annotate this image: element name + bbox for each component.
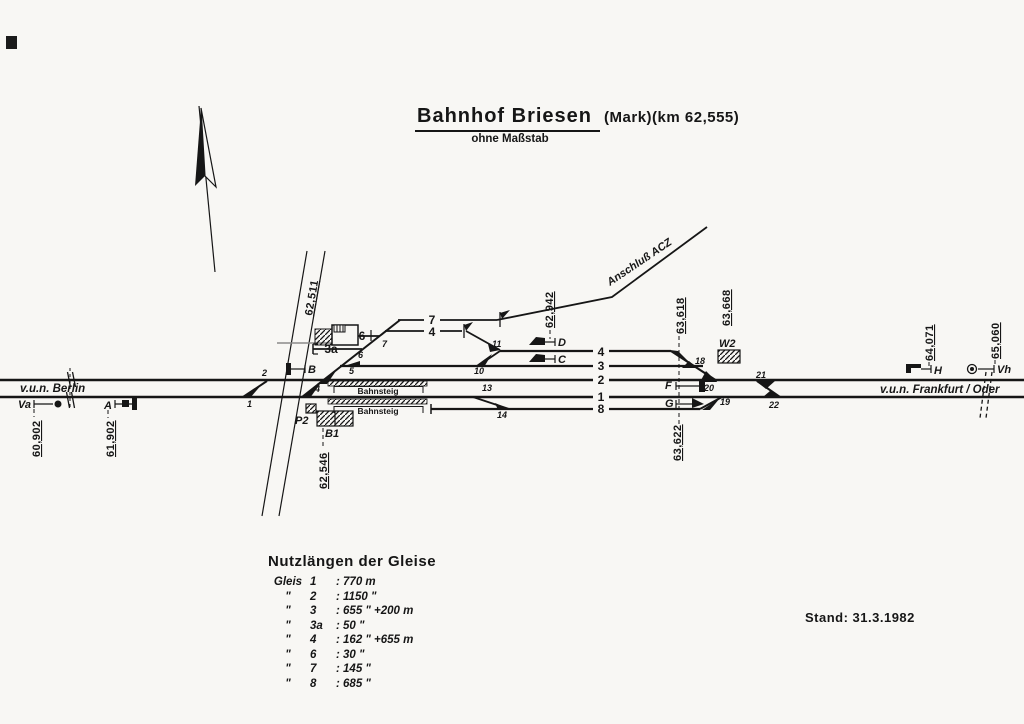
direction-right: v.u.n. Frankfurt / Oder (880, 384, 1000, 396)
legend-row: "6: 30 " (268, 648, 498, 663)
switch-5: 5 (349, 366, 355, 376)
direction-left: v.u.n. Berlin (20, 383, 85, 395)
switch-4: 4 (314, 384, 320, 394)
platform-upper-label: Bahnsteig (357, 386, 398, 396)
legend-row: "2: 1150 " (268, 590, 498, 605)
legend-row: "8: 685 " (268, 677, 498, 692)
page-title-suffix: (Mark)(km 62,555) (600, 109, 739, 126)
signal-c-icon (529, 354, 545, 362)
page-subtitle: ohne Maßstab (415, 133, 605, 145)
km-61902: 61,902 (105, 420, 117, 457)
switch-2: 2 (261, 368, 267, 378)
signal-h-label: H (934, 365, 943, 377)
building-w2-label: W2 (719, 338, 736, 350)
track-3a-number: 3a (324, 342, 338, 356)
signal-p2-label: P2 (295, 415, 308, 427)
track-8-number: 8 (598, 402, 605, 416)
track-4-upper-number: 4 (429, 325, 436, 339)
north-arrow-icon (195, 106, 216, 272)
signal-c-label: C (558, 354, 567, 366)
switch-1: 1 (247, 399, 252, 409)
signal-g-icon (692, 398, 704, 408)
platform-lower-label: Bahnsteig (357, 406, 398, 416)
signals (34, 337, 994, 410)
legend-row: "3a: 50 " (268, 619, 498, 634)
km-62511: 62,511 (303, 279, 321, 317)
km-63618: 63,618 (675, 297, 687, 334)
switch-14: 14 (497, 410, 507, 420)
page-title: Bahnhof Briesen (415, 105, 600, 132)
building-w2 (718, 350, 740, 363)
switch-13: 13 (482, 383, 492, 393)
signal-g-label: G (665, 398, 674, 410)
title-block: Bahnhof Briesen(Mark)(km 62,555) ohne Ma… (415, 105, 795, 145)
switch-18: 18 (695, 356, 705, 366)
signal-d-icon (529, 337, 545, 345)
km-leaders (34, 330, 995, 446)
switch-11: 11 (492, 339, 501, 349)
legend-row: Gleis1: 770 m (268, 575, 498, 590)
switch-10: 10 (474, 366, 484, 376)
track-3-number: 3 (598, 359, 605, 373)
switch-20: 20 (703, 383, 714, 393)
signal-d-label: D (558, 337, 566, 349)
switch-7: 7 (382, 339, 388, 349)
signal-p2-box (306, 404, 316, 413)
signal-va-icon (55, 401, 62, 408)
km-63668: 63,668 (721, 289, 733, 326)
stand-date: Stand: 31.3.1982 (805, 610, 915, 625)
km-62546: 62,546 (318, 452, 330, 489)
km-64071: 64,071 (924, 324, 936, 361)
legend-title: Nutzlängen der Gleise (268, 553, 498, 570)
km-65060: 65,060 (990, 322, 1002, 359)
building-b1-label: B1 (325, 428, 339, 440)
switch-21: 21 (755, 370, 766, 380)
legend-rows: Gleis1: 770 m "2: 1150 " "3: 655 " +200 … (268, 575, 498, 691)
signal-vh-label: Vh (997, 364, 1011, 376)
switch-22: 22 (768, 400, 779, 410)
signal-a-icon (122, 400, 129, 407)
main-tracks (0, 380, 1024, 397)
km-63622: 63,622 (672, 424, 684, 461)
km-60902: 60,902 (31, 420, 43, 457)
legend-row: "3: 655 " +200 m (268, 604, 498, 619)
switch-6: 6 (358, 350, 364, 360)
track-plan-canvas: Bahnsteig Bahnsteig B1 W2 P2 (0, 0, 1024, 724)
track-4-number: 4 (598, 345, 605, 359)
legend: Nutzlängen der Gleise Gleis1: 770 m "2: … (268, 553, 498, 691)
signal-b-icon (286, 363, 291, 375)
signal-b-label: B (308, 364, 316, 376)
track-2-number: 2 (598, 373, 605, 387)
km-62942: 62,942 (544, 291, 556, 328)
signal-va-label: Va (18, 399, 31, 411)
track-6-number: 6 (359, 329, 366, 343)
legend-row: "7: 145 " (268, 662, 498, 677)
legend-row: "4: 162 " +655 m (268, 633, 498, 648)
signal-f-label: F (665, 380, 672, 392)
platform-lower-hatch (328, 399, 427, 404)
km-markers: 60,902 61,902 62,511 62,546 62,942 63,61… (31, 279, 1002, 489)
branch-label: Anschluß ACZ (604, 236, 675, 289)
switch-19: 19 (720, 397, 730, 407)
